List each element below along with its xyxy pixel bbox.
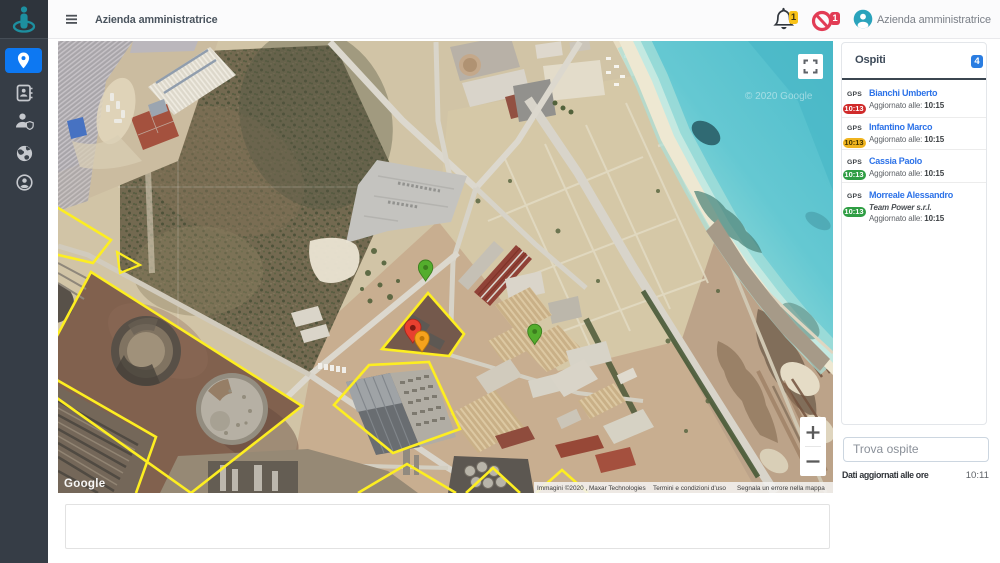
svg-text:Google: Google [64,478,105,490]
svg-text:Termini e condizioni d'uso: Termini e condizioni d'uso [653,485,726,492]
svg-text:Segnala un errore nella mappa: Segnala un errore nella mappa [737,485,825,492]
svg-text:Immagini ©2020 , Maxar Technol: Immagini ©2020 , Maxar Technologies [537,484,646,492]
svg-text:© 2020 Google: © 2020 Google [745,91,813,102]
